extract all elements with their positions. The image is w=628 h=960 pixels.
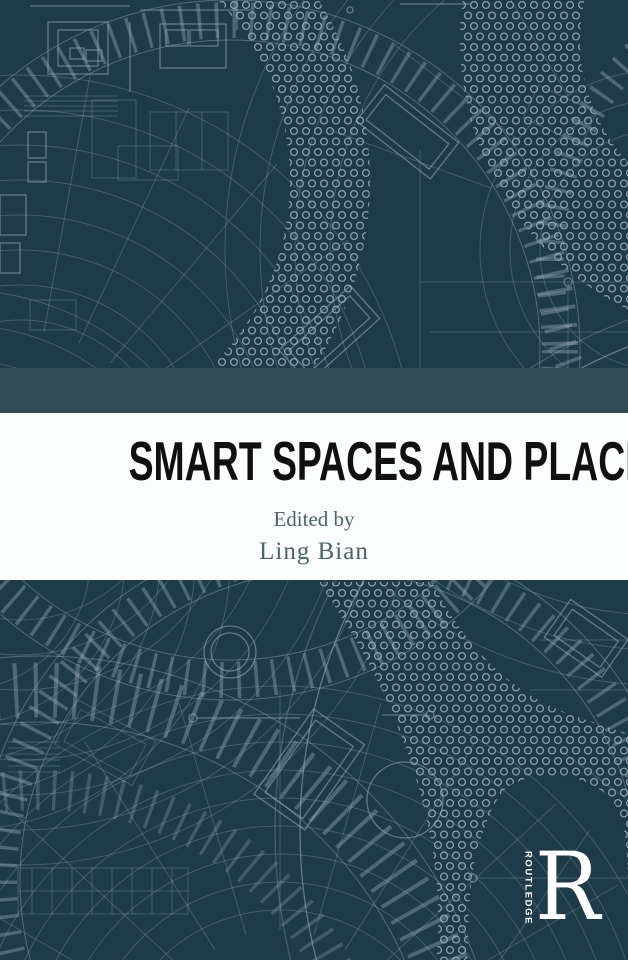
routledge-logo: ROUTLEDGE R bbox=[521, 846, 606, 930]
book-title: SMART SPACES AND PLACES bbox=[129, 434, 628, 489]
routledge-wordmark: ROUTLEDGE bbox=[523, 851, 534, 925]
title-panel: SMART SPACES AND PLACES Edited by Ling B… bbox=[0, 413, 628, 580]
book-cover: SMART SPACES AND PLACES Edited by Ling B… bbox=[0, 0, 628, 960]
title-band-strip bbox=[0, 368, 628, 413]
editor-name: Ling Bian bbox=[0, 538, 628, 566]
routledge-r-monogram: R bbox=[535, 851, 600, 924]
edited-by-label: Edited by bbox=[0, 508, 628, 531]
routledge-wordmark-box: ROUTLEDGE bbox=[521, 848, 535, 928]
